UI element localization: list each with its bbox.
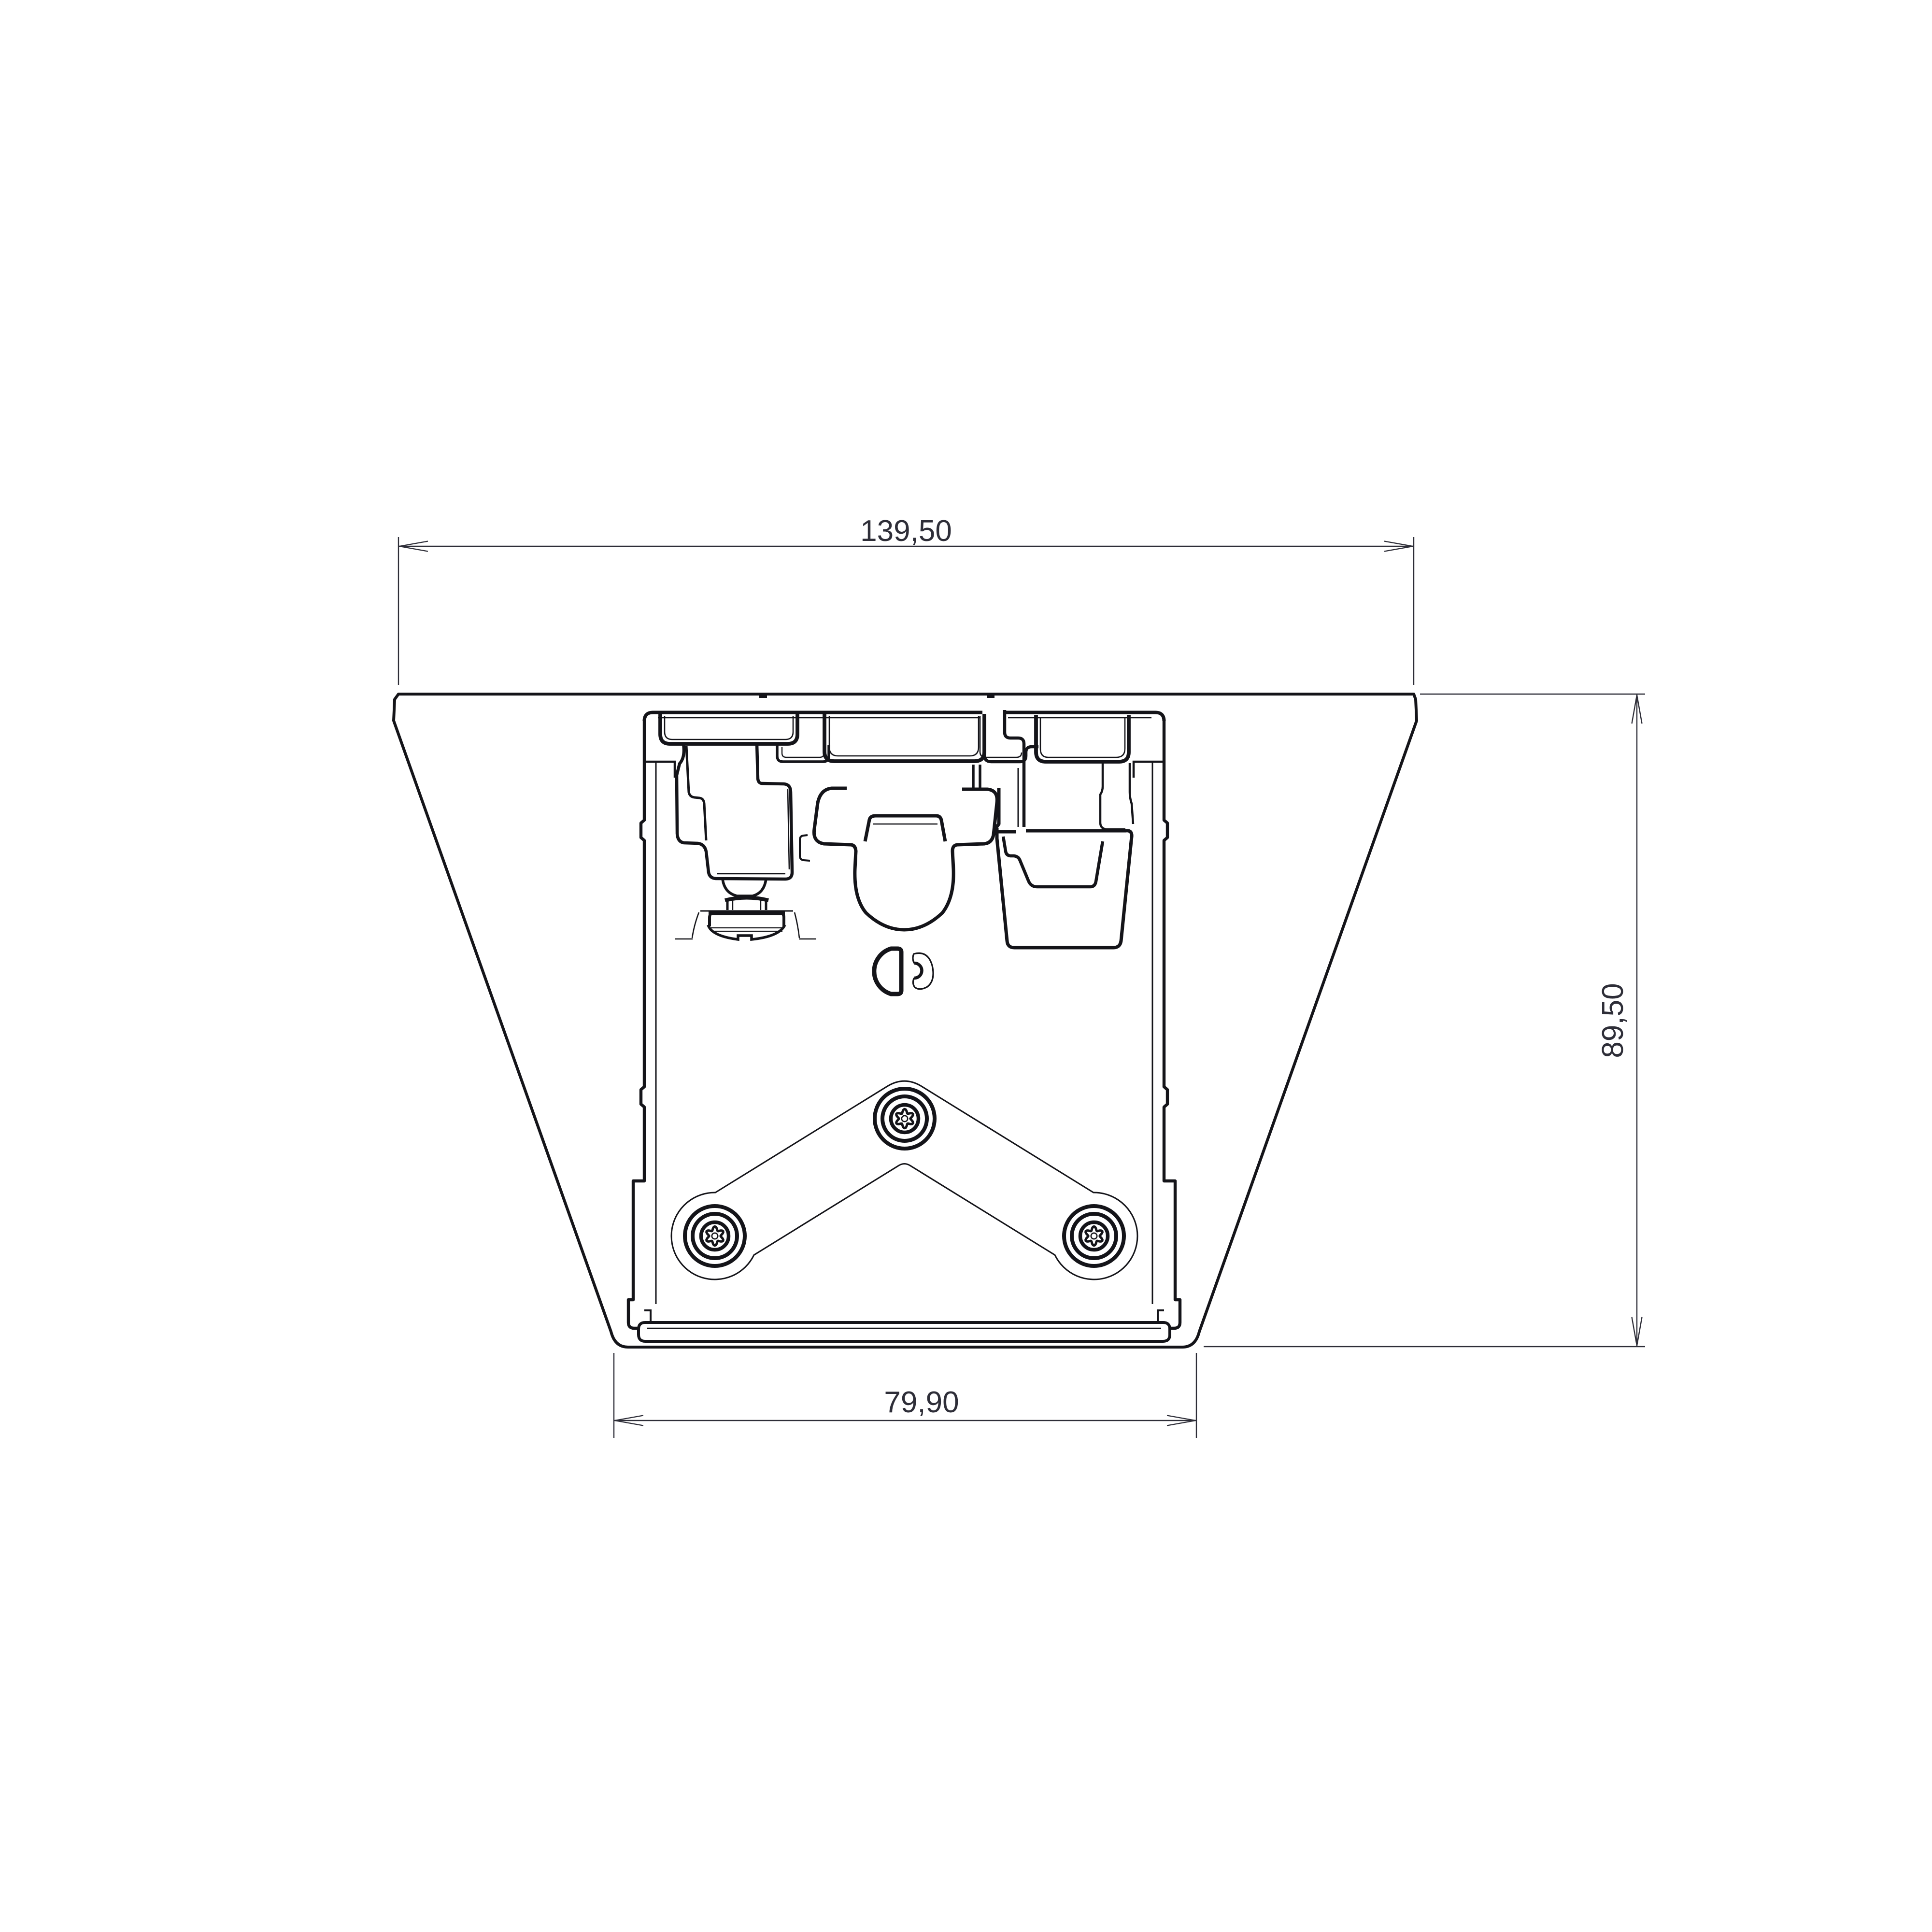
svg-text:79,90: 79,90 [884, 1386, 959, 1419]
svg-text:89,50: 89,50 [1596, 983, 1630, 1058]
svg-text:139,50: 139,50 [860, 514, 952, 548]
